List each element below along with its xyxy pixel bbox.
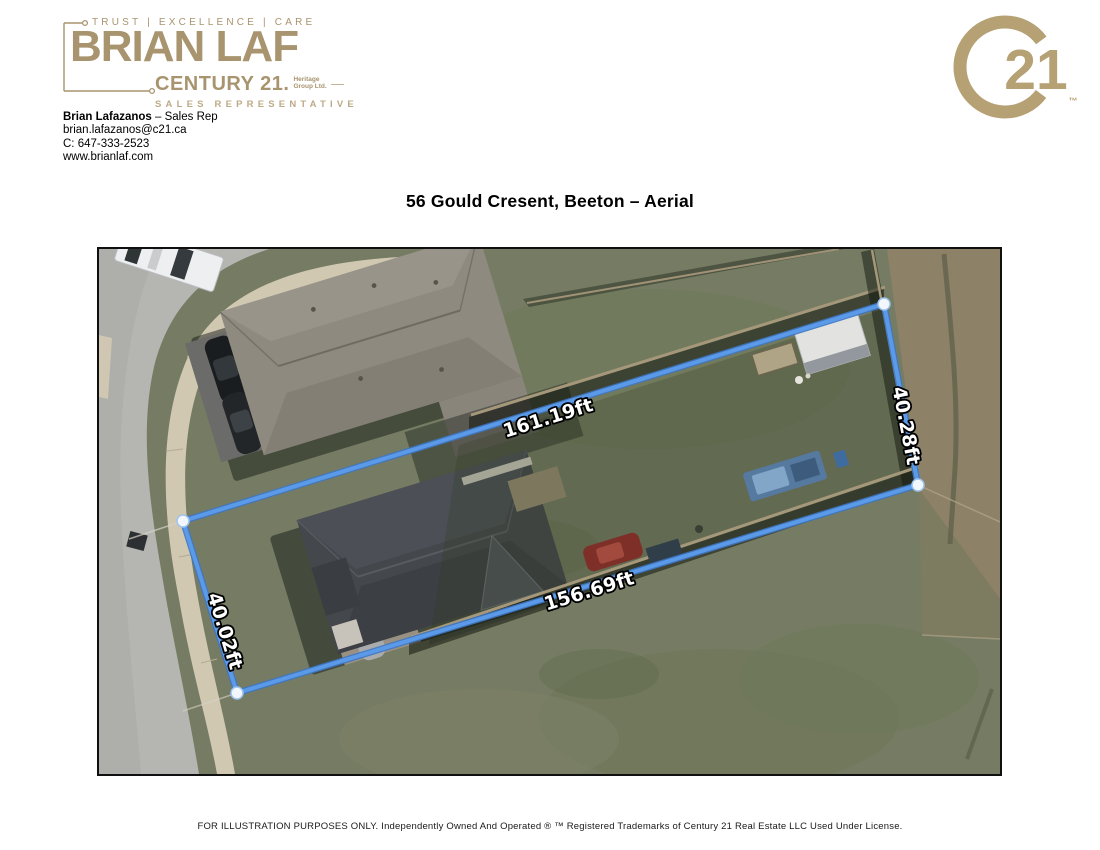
contact-website: www.brianlaf.com bbox=[63, 151, 218, 164]
rock bbox=[806, 374, 811, 379]
agent-logo-wordmark: BRIAN LAF bbox=[70, 25, 298, 69]
contact-name: Brian Lafazanos bbox=[63, 111, 152, 123]
corner-marker-bottom-left bbox=[231, 687, 243, 699]
century21-wordmark: CENTURY 21. bbox=[155, 74, 289, 94]
page-title: 56 Gould Cresent, Beeton – Aerial bbox=[0, 191, 1100, 212]
corner-marker-left-top bbox=[177, 515, 189, 527]
corner-marker-right bbox=[912, 479, 924, 491]
corner-marker-top-right bbox=[878, 298, 890, 310]
contact-block: Brian Lafazanos – Sales Rep brian.lafaza… bbox=[63, 111, 218, 165]
seal-trademark-icon: ™ bbox=[1069, 96, 1078, 106]
grass-patch bbox=[539, 649, 659, 699]
aerial-photo: 161.19ft 40.28ft 156.69ft 40.02ft bbox=[97, 247, 1002, 776]
contact-name-line: Brian Lafazanos – Sales Rep bbox=[63, 111, 218, 124]
brand-row: CENTURY 21. Heritage Group Ltd. bbox=[155, 74, 344, 94]
grass-patch bbox=[739, 624, 979, 734]
disclaimer: FOR ILLUSTRATION PURPOSES ONLY. Independ… bbox=[0, 821, 1100, 832]
contact-phone: C: 647-333-2523 bbox=[63, 138, 218, 151]
rock bbox=[795, 376, 803, 384]
role-label: SALES REPRESENTATIVE bbox=[155, 99, 358, 110]
yard-object bbox=[695, 525, 703, 533]
contact-email: brian.lafazanos@c21.ca bbox=[63, 124, 218, 137]
brokerage-line1: Heritage bbox=[293, 76, 319, 83]
century21-seal: 21 ™ bbox=[953, 12, 1093, 124]
seal-number: 21 bbox=[1004, 38, 1067, 102]
brokerage-line2: Group Ltd. bbox=[293, 83, 326, 90]
brokerage-rule bbox=[331, 84, 344, 85]
contact-role-suffix: – Sales Rep bbox=[152, 111, 218, 123]
brokerage-name: Heritage Group Ltd. bbox=[293, 76, 326, 90]
